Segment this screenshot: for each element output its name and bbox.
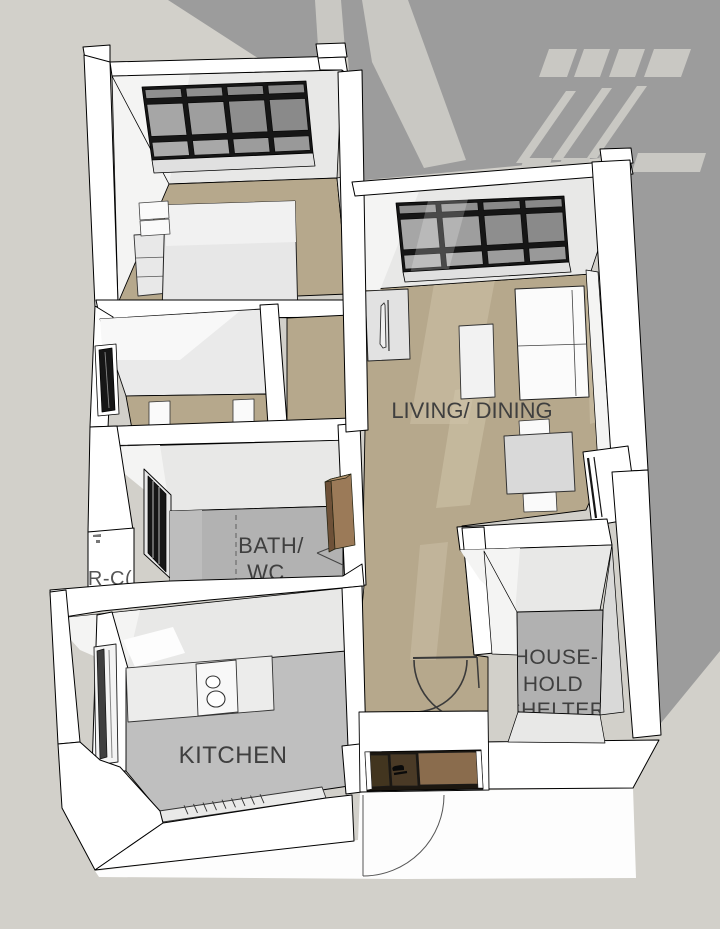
svg-text:KITCHEN: KITCHEN [179,742,288,769]
svg-text:BATH/: BATH/ [238,533,304,558]
svg-text:HOLD: HOLD [523,673,583,696]
svg-text:HOUSE-: HOUSE- [514,646,599,669]
svg-text:LIVING/ DINING: LIVING/ DINING [391,398,552,423]
